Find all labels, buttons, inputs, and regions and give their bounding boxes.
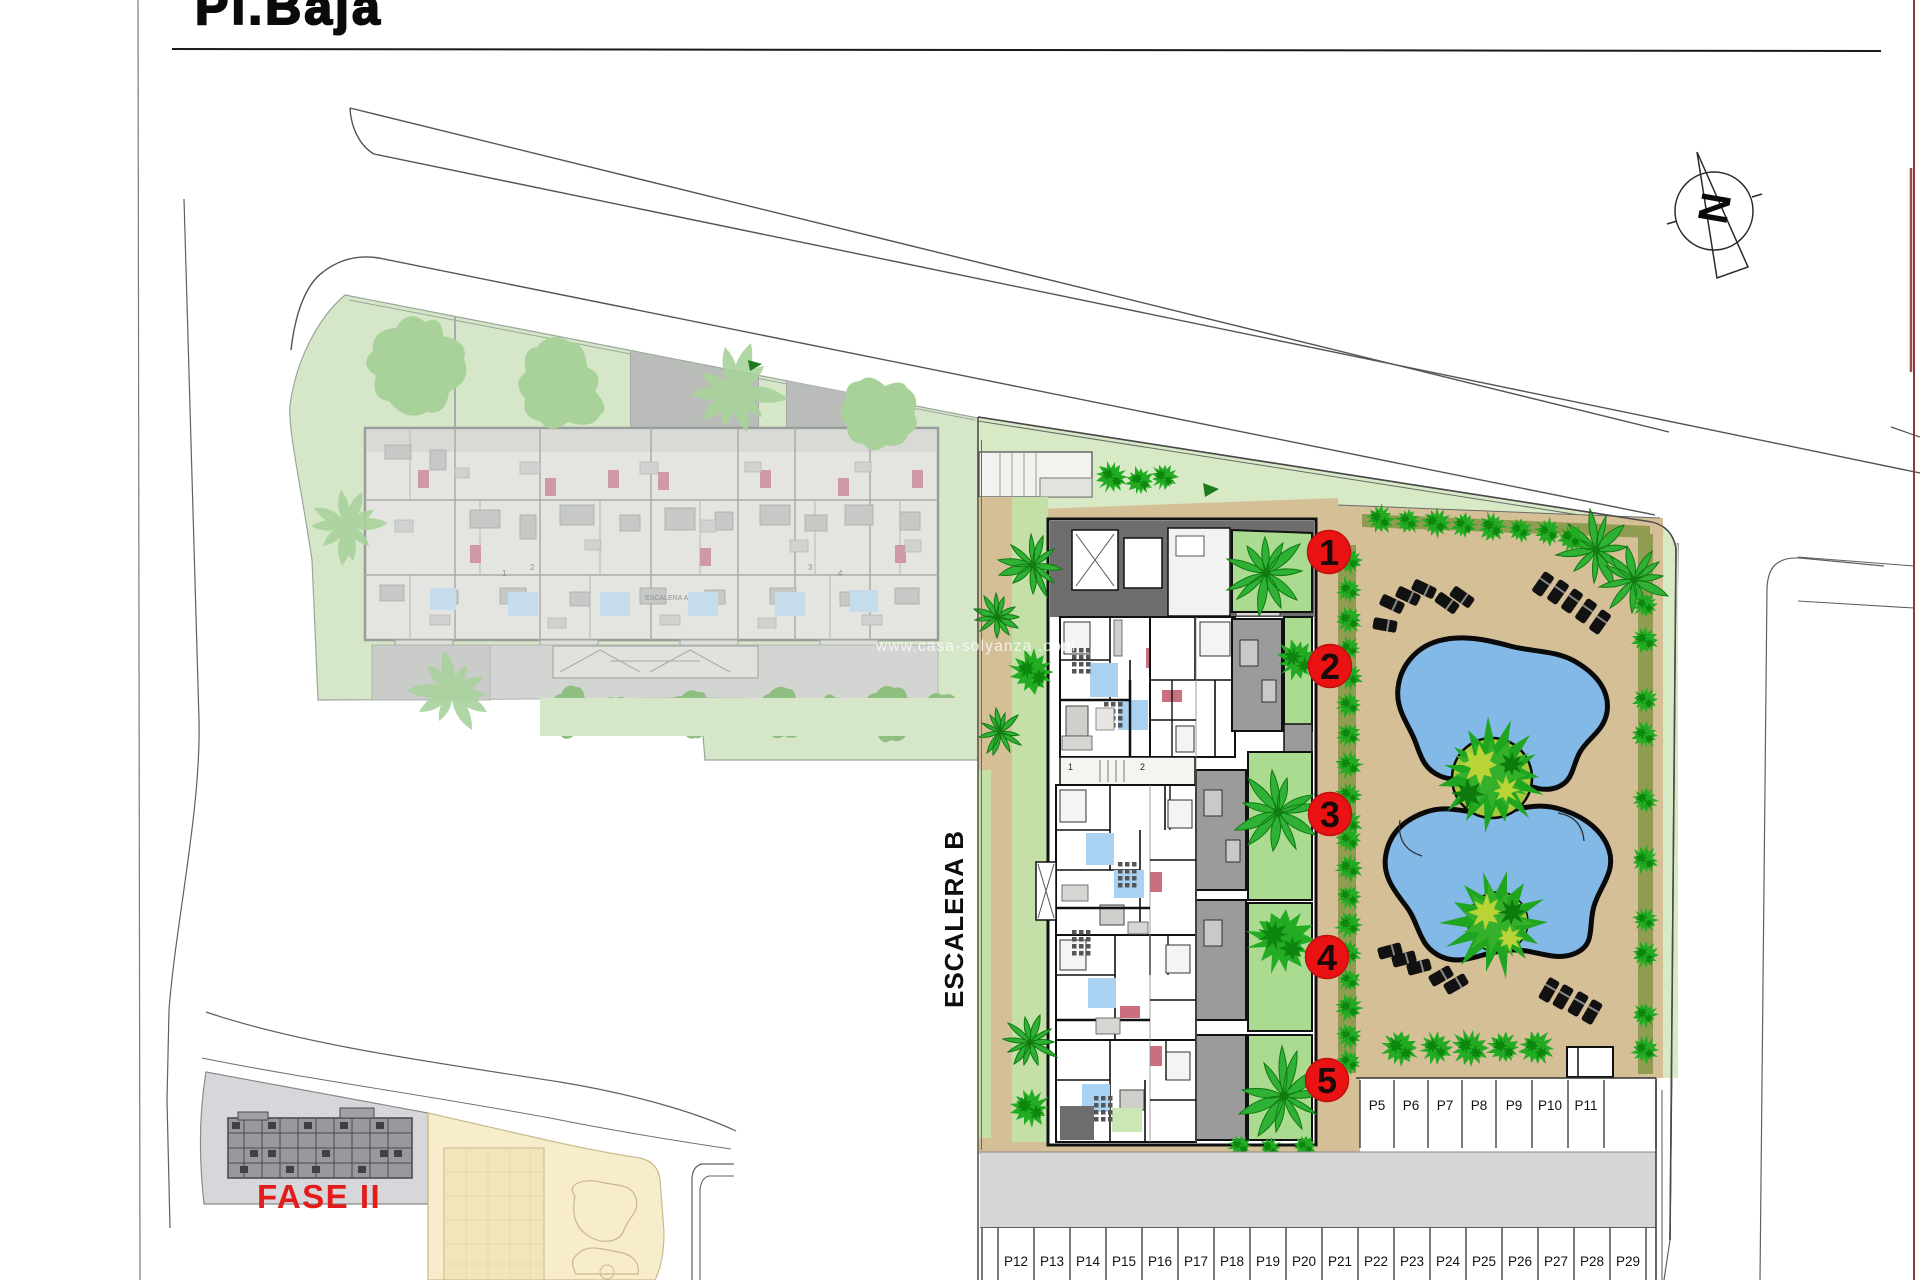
svg-text:P23: P23 — [1400, 1254, 1424, 1269]
svg-text:P17: P17 — [1184, 1254, 1208, 1269]
svg-text:1: 1 — [1319, 532, 1339, 573]
svg-text:3: 3 — [808, 563, 813, 572]
svg-text:FASE II: FASE II — [257, 1178, 381, 1215]
svg-text:P19: P19 — [1256, 1254, 1280, 1269]
svg-text:P5: P5 — [1369, 1098, 1386, 1113]
svg-text:P25: P25 — [1472, 1254, 1496, 1269]
svg-text:4: 4 — [838, 569, 843, 578]
svg-text:2: 2 — [530, 563, 535, 572]
svg-text:P10: P10 — [1538, 1098, 1562, 1113]
svg-text:Pl.Baja: Pl.Baja — [195, 0, 383, 35]
svg-text:P13: P13 — [1040, 1254, 1064, 1269]
svg-text:P21: P21 — [1328, 1254, 1352, 1269]
svg-text:P9: P9 — [1506, 1098, 1523, 1113]
svg-text:P14: P14 — [1076, 1254, 1101, 1269]
svg-text:P18: P18 — [1220, 1254, 1244, 1269]
svg-text:P27: P27 — [1544, 1254, 1568, 1269]
svg-text:P7: P7 — [1437, 1098, 1454, 1113]
svg-text:P26: P26 — [1508, 1254, 1532, 1269]
svg-text:P11: P11 — [1574, 1098, 1597, 1113]
svg-text:2: 2 — [1140, 762, 1145, 772]
svg-text:2: 2 — [1320, 646, 1340, 687]
svg-text:P28: P28 — [1580, 1254, 1604, 1269]
svg-text:P8: P8 — [1471, 1098, 1488, 1113]
svg-text:5: 5 — [1317, 1060, 1337, 1101]
svg-text:4: 4 — [1317, 937, 1337, 978]
svg-text:P12: P12 — [1004, 1254, 1028, 1269]
svg-text:P20: P20 — [1292, 1254, 1316, 1269]
svg-text:1: 1 — [1068, 762, 1073, 772]
svg-text:P24: P24 — [1436, 1254, 1461, 1269]
svg-text:P6: P6 — [1403, 1098, 1420, 1113]
svg-text:P15: P15 — [1112, 1254, 1136, 1269]
svg-text:3: 3 — [1320, 794, 1340, 835]
svg-text:P16: P16 — [1148, 1254, 1172, 1269]
svg-text:www.casa-solyanza .com: www.casa-solyanza .com — [875, 638, 1076, 655]
svg-text:P22: P22 — [1364, 1254, 1388, 1269]
svg-text:1: 1 — [502, 569, 507, 578]
svg-text:ESCALERA B: ESCALERA B — [939, 830, 969, 1008]
svg-text:ESCALERA A: ESCALERA A — [645, 595, 689, 602]
svg-text:P29: P29 — [1616, 1254, 1640, 1269]
